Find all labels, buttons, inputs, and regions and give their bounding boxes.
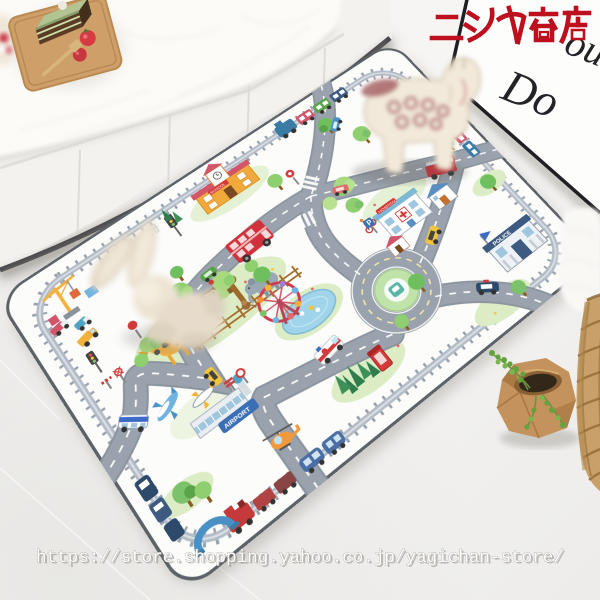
svg-text:https://store.shopping.yahoo.c: https://store.shopping.yahoo.co.jp/yagic…	[36, 548, 564, 568]
